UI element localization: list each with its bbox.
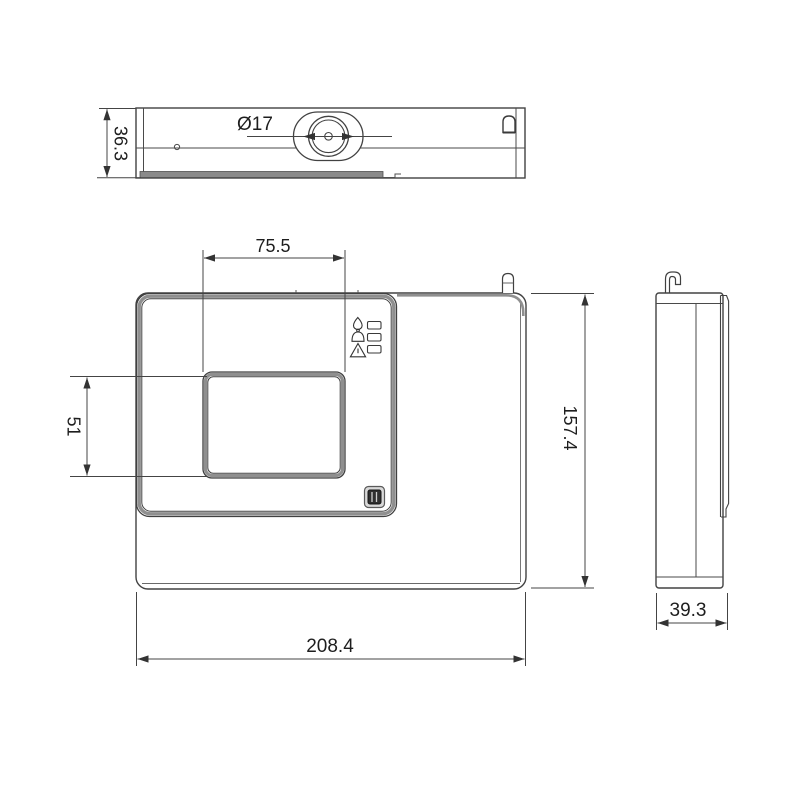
dimension-label-top-thickness: 36.3	[111, 126, 131, 161]
ir-window-glass	[368, 490, 381, 504]
dimension-overall-width: 208.4	[137, 592, 526, 666]
display-outer-line	[203, 372, 345, 478]
side-view: 39.3	[656, 272, 729, 630]
dimension-label-overall-width: 208.4	[306, 636, 354, 657]
side-body-outline	[656, 293, 723, 588]
dimension-top-thickness: 36.3	[97, 109, 141, 178]
top-view: 36.3 Ø17	[97, 108, 525, 178]
dimension-label-overall-height: 157.4	[560, 405, 580, 450]
dimension-label-knob-diameter: Ø17	[237, 114, 273, 135]
led-indicator	[368, 346, 382, 354]
ir-window-button	[365, 487, 385, 508]
display-window	[203, 372, 345, 478]
mounting-hook-side	[666, 272, 681, 293]
led-indicator	[368, 334, 382, 342]
front-view: 75.5 51 157.4 208.4	[64, 236, 594, 666]
led-indicator-windows	[368, 322, 382, 354]
led-indicator	[368, 322, 382, 330]
dimension-overall-height: 157.4	[531, 294, 594, 589]
technical-drawing: 36.3 Ø17	[0, 0, 800, 800]
dimension-label-display-width: 75.5	[255, 236, 290, 256]
drawing-canvas: 36.3 Ø17	[0, 0, 800, 800]
top-view-bottom-bar	[140, 172, 383, 178]
dimension-label-depth: 39.3	[670, 600, 707, 621]
dimension-label-display-height: 51	[64, 416, 84, 436]
dimension-depth: 39.3	[657, 593, 728, 630]
mounting-clip-front	[503, 274, 514, 294]
